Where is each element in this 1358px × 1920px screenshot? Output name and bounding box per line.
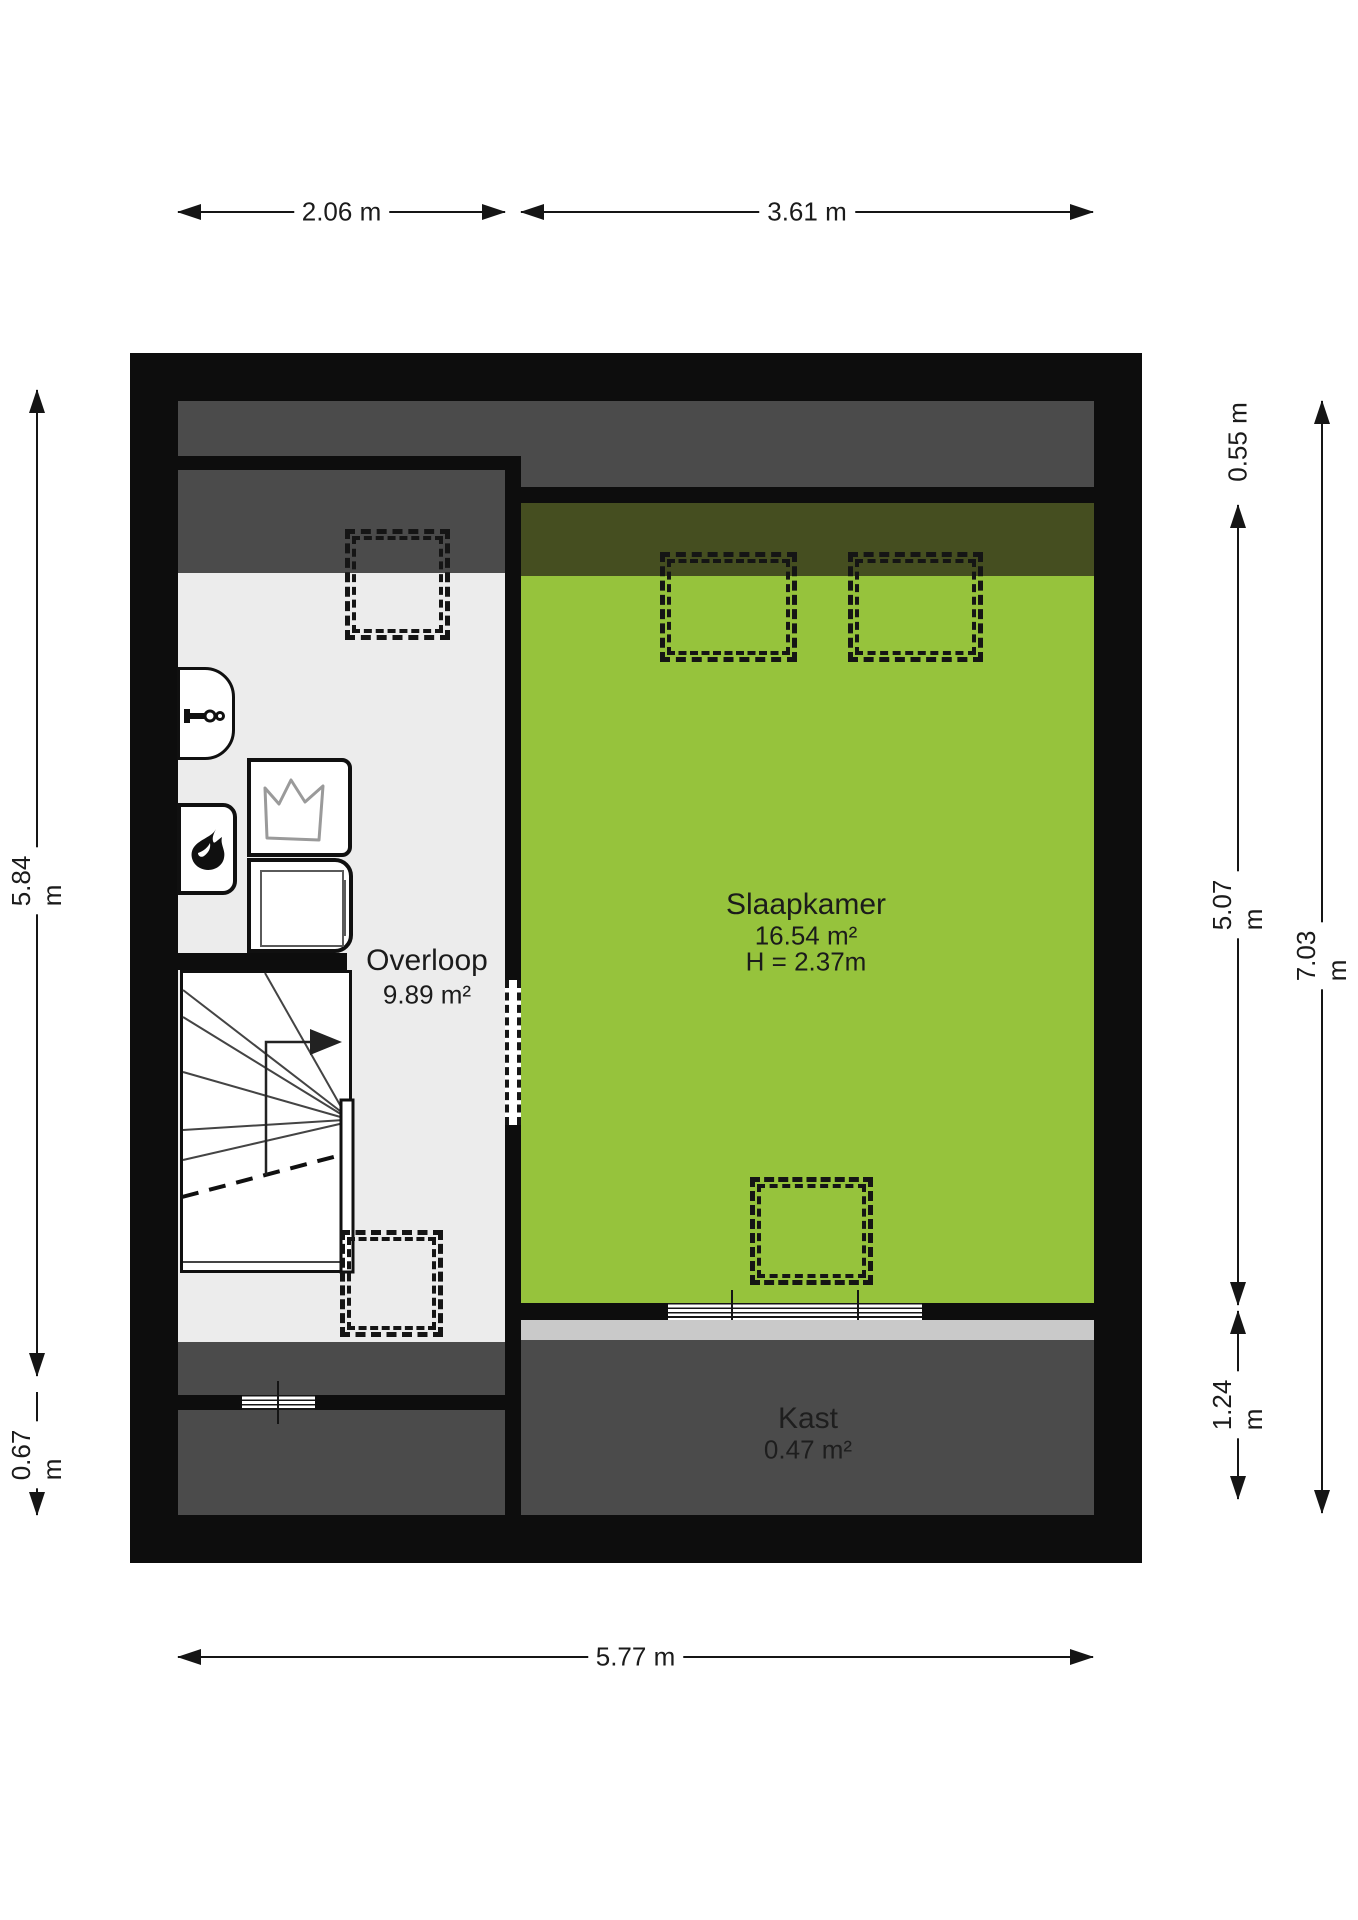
arrow-left-icon [520,204,544,220]
arrow-right-icon [482,204,506,220]
arrow-up-icon [1230,504,1246,528]
roof-window [340,1230,443,1337]
boiler [177,803,237,895]
dryer [247,858,353,953]
roof-window [660,552,797,662]
arrow-down-icon [1230,1282,1246,1306]
wall-left [130,353,178,1563]
arrow-up-icon [1230,1310,1246,1334]
door-opening [505,980,521,1125]
arrow-right-icon [1070,204,1094,220]
wall-bottom [130,1515,1142,1563]
bedroom-shaded-strip [521,503,1094,576]
room-area-kast: 0.47 m² [764,1435,852,1466]
room-label-overloop: Overloop [366,944,488,978]
arrow-left-icon [177,204,201,220]
roof-window [345,529,450,640]
room-height-slaapkamer: H = 2.37m [746,947,867,978]
wall-bottom-left [178,1395,505,1410]
roof-window [750,1177,873,1285]
toilet [177,667,235,760]
flush-icon [182,701,228,731]
stairwell [180,970,352,1273]
window-tick [277,1381,279,1424]
stairwell-top-wall [178,953,347,970]
arrow-down-icon [29,1353,45,1377]
basin-icon [261,774,341,844]
arrow-down-icon [1314,1490,1330,1514]
floorplan-canvas: Overloop 9.89 m² Slaapkamer 16.54 m² H =… [0,0,1358,1920]
bottom-left-zone [178,1342,505,1515]
wall-overloop-top [178,456,521,470]
arrow-up-icon [1314,400,1330,424]
wall-top [130,353,1142,401]
wall-right [1094,353,1142,1563]
arrow-down-icon [29,1492,45,1516]
dim-right-top: 0.55 m [1222,396,1255,488]
arrow-left-icon [177,1649,201,1665]
washbasin-unit [247,758,352,857]
room-label-kast: Kast [778,1402,838,1436]
arrow-up-icon [29,389,45,413]
wall-slaapkamer-top [521,487,1094,503]
arrow-right-icon [1070,1649,1094,1665]
arrow-down-icon [1230,1476,1246,1500]
roof-window [848,552,983,662]
dryer-handle [344,880,346,936]
window-slaapkamer [668,1303,922,1320]
dryer-door [260,870,344,947]
room-label-slaapkamer: Slaapkamer [726,888,886,922]
room-area-overloop: 9.89 m² [383,980,471,1011]
flame-icon [186,827,230,873]
kast-sill-strip [521,1320,1094,1340]
